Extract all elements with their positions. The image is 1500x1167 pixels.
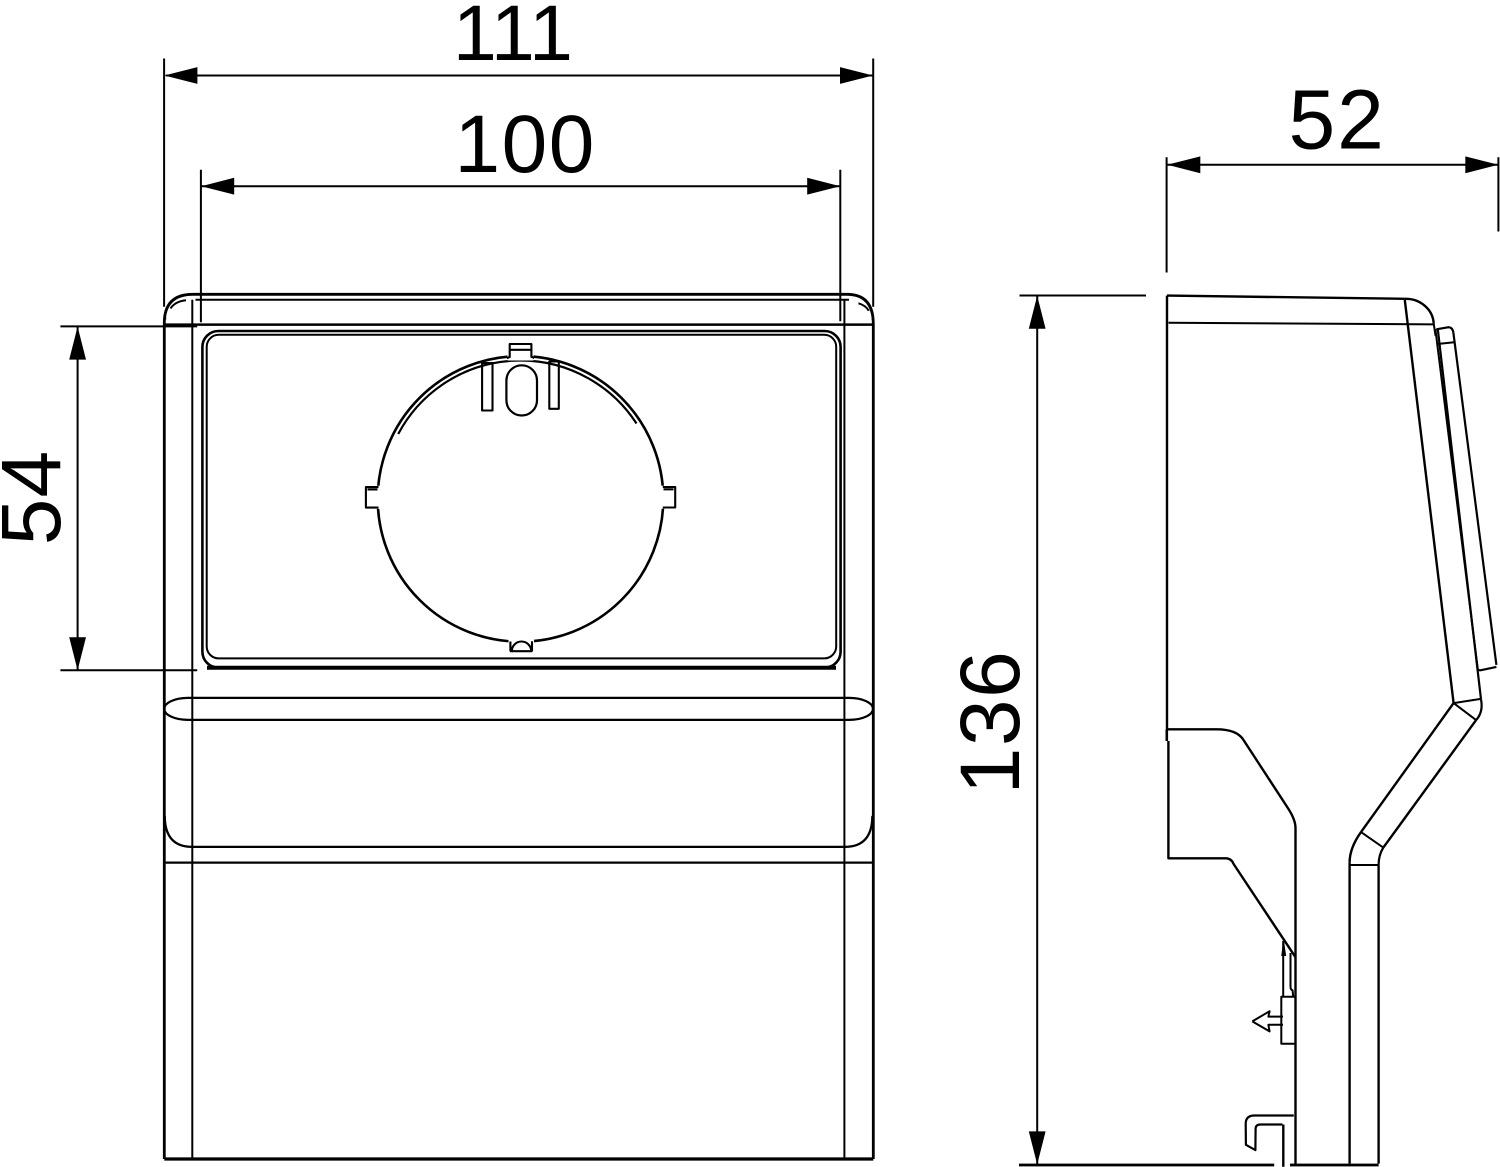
svg-text:100: 100 <box>455 99 596 190</box>
svg-text:54: 54 <box>0 450 78 545</box>
svg-text:136: 136 <box>943 650 1037 795</box>
svg-text:52: 52 <box>1288 72 1385 166</box>
svg-text:111: 111 <box>453 0 573 77</box>
